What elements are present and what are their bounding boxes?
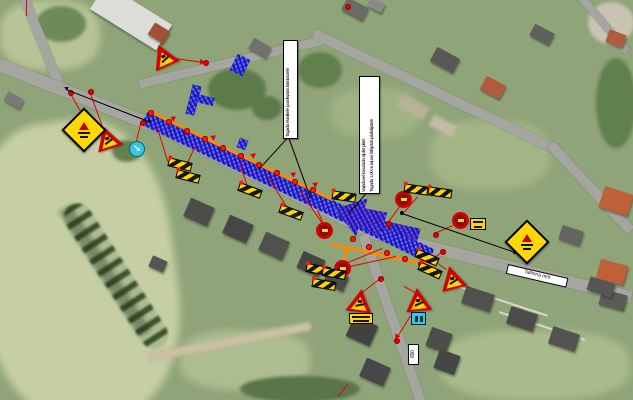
note-text: Tagada elanikele juurdepääs kinnistutele <box>285 41 290 138</box>
no-entry-bar <box>401 198 407 201</box>
house-roof <box>258 232 290 261</box>
note-text: Tagada 1,00 m laiune läbipääs jalakäijat… <box>369 77 374 193</box>
cone-marker <box>220 145 226 151</box>
closed-sideroad-marker <box>237 138 249 150</box>
red-arrowhead <box>289 170 296 178</box>
text-bar <box>78 132 90 134</box>
roadworks-triangle-sign <box>404 287 432 313</box>
cone-marker <box>274 170 280 176</box>
house-roof <box>222 215 254 244</box>
no-entry-sign <box>452 212 469 229</box>
tree-cluster <box>596 58 633 148</box>
red-point <box>378 276 384 282</box>
house-roof <box>598 186 633 216</box>
house-roof <box>183 198 215 227</box>
warning-triangle-icon <box>522 234 532 242</box>
digger-icon <box>416 299 420 302</box>
house-roof <box>480 76 506 100</box>
barrier-board <box>427 186 452 198</box>
road-number-text: 650 <box>410 345 417 364</box>
warning-lamp <box>403 181 408 186</box>
tree-cluster <box>252 96 282 120</box>
info-diamond-sign <box>504 219 549 264</box>
text-bar <box>523 248 531 250</box>
warning-lamp <box>416 246 421 251</box>
house-roof <box>359 358 391 387</box>
note-text: Vajadusel kasutada ajutist piiret <box>361 77 366 193</box>
roadworks-triangle-sign <box>346 287 375 313</box>
barrier-board <box>175 169 200 184</box>
red-point <box>386 221 392 227</box>
road-number-label: 650 <box>408 344 419 365</box>
warning-lamp <box>427 184 432 189</box>
sign-plate <box>349 313 373 324</box>
note-box: Tagada 1,00 m laiune läbipääs jalakäijat… <box>359 76 380 194</box>
house-roof <box>529 24 555 46</box>
note-box: Tagada elanikele juurdepääs kinnistutele <box>283 40 298 139</box>
no-entry-sign <box>395 191 412 208</box>
plate-text-bar <box>473 221 483 223</box>
warning-triangle-icon <box>79 122 89 130</box>
no-entry-bar <box>458 219 464 222</box>
pedestrian-icon <box>415 316 418 322</box>
red-leader-line <box>136 124 141 142</box>
pedestrian-icon <box>420 316 423 322</box>
house-roof <box>367 0 386 13</box>
red-point <box>345 4 351 10</box>
keep-right-sign: ↘ <box>129 141 145 157</box>
red-point <box>440 249 446 255</box>
house-roof <box>430 47 460 73</box>
no-entry-bar <box>322 229 328 232</box>
shed-roof <box>4 91 25 109</box>
barrier-board <box>237 182 263 199</box>
warning-lamp <box>239 180 244 185</box>
red-point <box>433 232 439 238</box>
warning-lamp <box>322 265 327 270</box>
diamond-pictograms <box>70 116 98 144</box>
text-bar <box>80 136 88 138</box>
tree-cluster <box>240 376 360 400</box>
road <box>547 141 633 234</box>
cone-marker <box>184 128 190 134</box>
keep-right-arrow-icon: ↘ <box>133 143 141 153</box>
plate-text-bar <box>353 320 369 322</box>
house-roof <box>461 286 495 312</box>
digger-icon <box>358 300 362 304</box>
warning-lamp <box>176 167 181 172</box>
diamond-pictograms <box>513 228 541 256</box>
field-patch <box>440 330 630 400</box>
warning-lamp <box>306 261 311 266</box>
no-entry-sign <box>316 222 333 239</box>
warning-lamp <box>312 276 317 281</box>
cone-marker <box>350 236 356 242</box>
pedestrian-detour-sign <box>411 312 426 325</box>
cone-marker <box>148 110 154 116</box>
cone-marker <box>202 136 208 142</box>
cone-marker <box>384 250 390 256</box>
barrier-board <box>278 204 304 221</box>
house-roof <box>558 225 584 246</box>
red-point <box>394 338 400 344</box>
traffic-management-plan-map: ↘ Tagada elanikele juurdepääs kinnistute… <box>0 0 633 400</box>
cone-marker <box>292 179 298 185</box>
dimension-endpoint <box>400 211 404 215</box>
cone-marker <box>402 256 408 262</box>
sign-plate <box>470 218 486 230</box>
house-roof <box>341 0 369 21</box>
red-point <box>88 89 94 95</box>
note-leader-line <box>258 136 289 170</box>
warning-lamp <box>331 188 336 193</box>
plate-text-bar <box>352 316 370 318</box>
plate-text-bar <box>474 226 482 228</box>
text-bar <box>521 244 533 246</box>
red-leader-line <box>388 206 400 222</box>
warning-lamp <box>280 202 285 207</box>
tree-cluster <box>298 52 342 88</box>
cone-marker <box>238 153 244 159</box>
cone-marker <box>366 244 372 250</box>
warning-lamp <box>168 155 173 160</box>
red-point <box>203 60 209 66</box>
warning-lamp <box>419 259 424 264</box>
red-leader-line <box>26 0 27 16</box>
